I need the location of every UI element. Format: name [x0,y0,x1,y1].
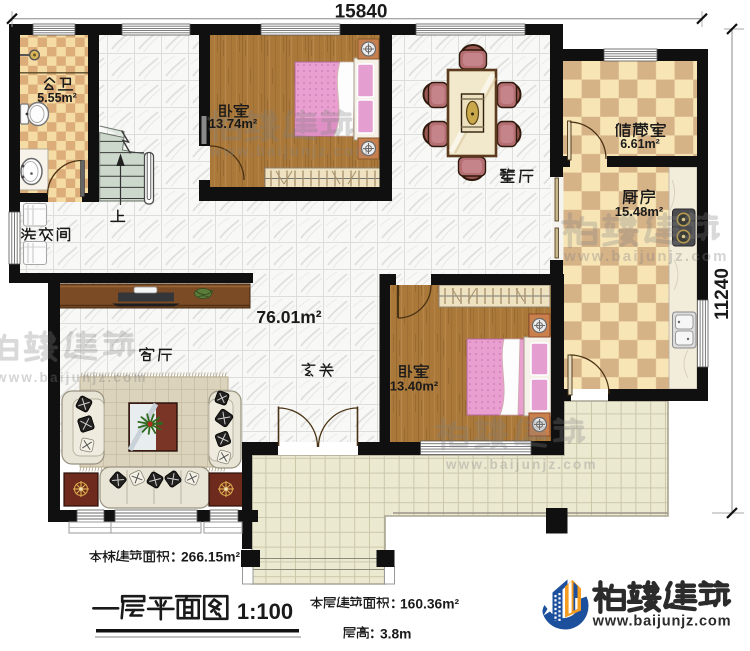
svg-text:www.baijunjz.com: www.baijunjz.com [563,248,729,265]
svg-text:3.8m: 3.8m [380,627,411,642]
svg-text:266.15m²: 266.15m² [181,550,240,565]
svg-text:15.48m²: 15.48m² [615,204,664,219]
svg-text:13.40m²: 13.40m² [390,379,439,394]
svg-text:www.baijunjz.com: www.baijunjz.com [0,370,148,385]
svg-text:6.61m²: 6.61m² [620,137,660,151]
svg-text:13.74m²: 13.74m² [209,116,258,131]
svg-text:www.baijunjz.com: www.baijunjz.com [445,457,598,472]
svg-text:11240: 11240 [712,268,733,320]
svg-text:160.36m²: 160.36m² [400,597,459,612]
svg-text:www.baijunjz.com: www.baijunjz.com [592,614,732,630]
svg-text:www.baijunjz.com: www.baijunjz.com [209,144,370,160]
svg-text:1:100: 1:100 [237,599,293,624]
svg-text:15840: 15840 [335,2,388,23]
svg-text:5.55m²: 5.55m² [37,91,77,105]
svg-text:76.01m²: 76.01m² [256,307,321,327]
